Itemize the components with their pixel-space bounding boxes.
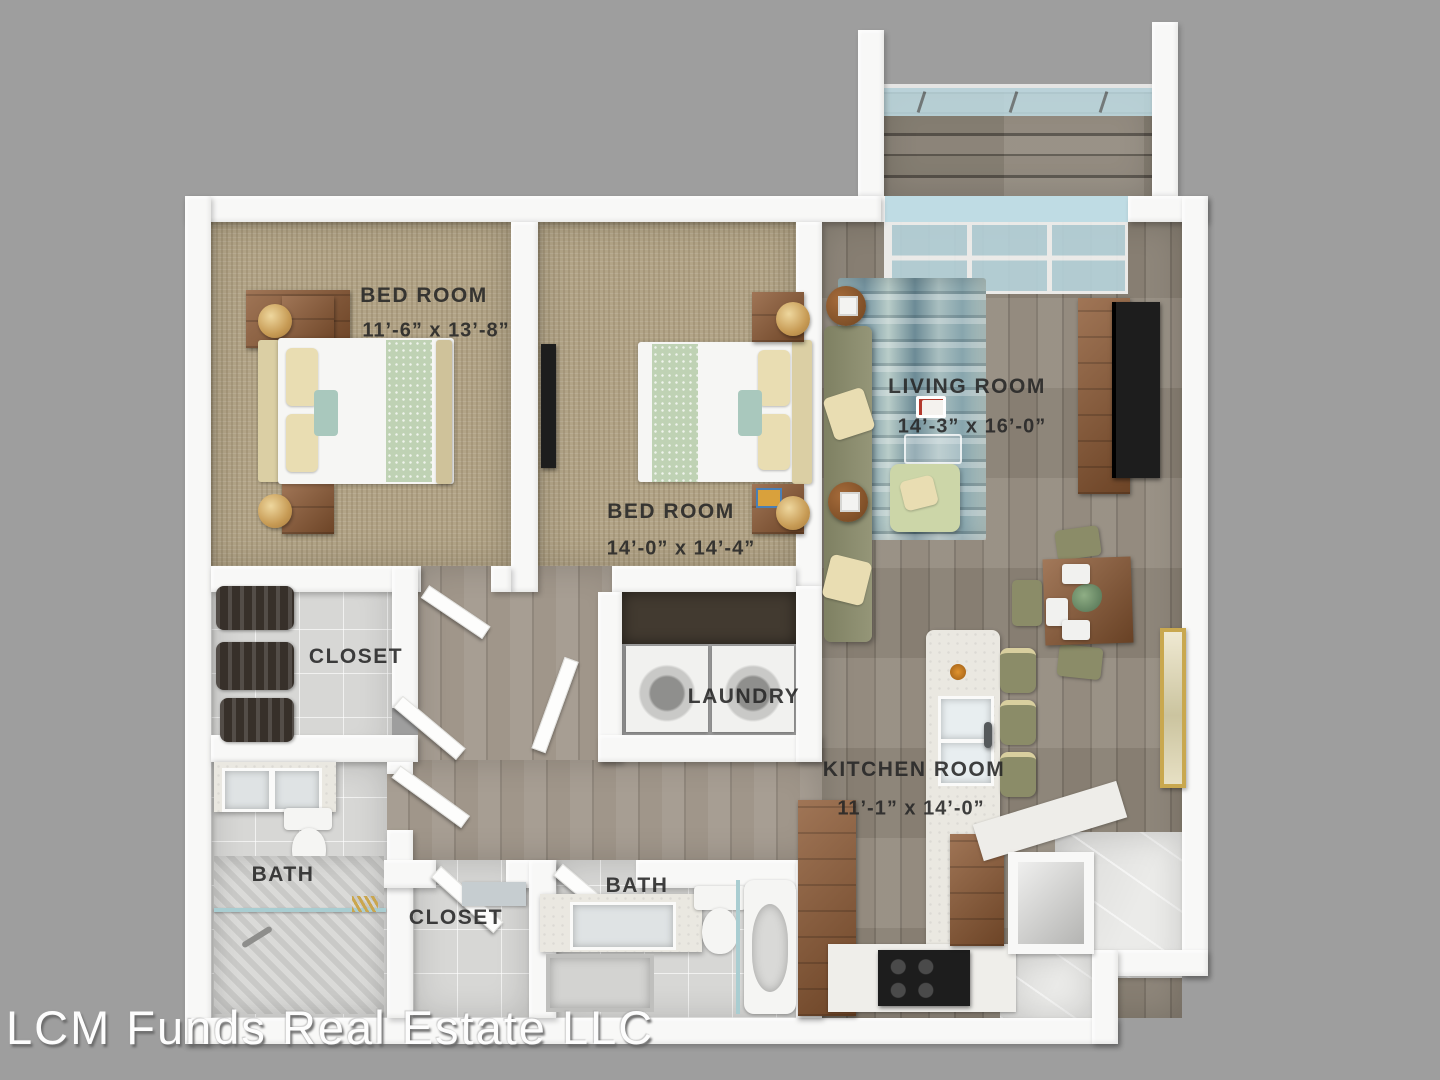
faucet-icon [984, 722, 992, 748]
shoe-rack [216, 642, 294, 690]
table-lamp-icon [838, 296, 858, 316]
lamp-icon [776, 302, 810, 336]
outer-wall-right [1182, 196, 1208, 976]
laundry-counter [622, 592, 796, 644]
pantry-niche [1008, 852, 1094, 954]
kitchen-label: KITCHEN ROOM [823, 758, 1006, 782]
bath-lower-label: BATH [606, 874, 669, 898]
kitchen-dimensions: 11’-1” x 14’-0” [837, 798, 984, 821]
floor-plan: BED ROOM 11’-6” x 13’-8” BED ROOM 14’-0”… [0, 0, 1440, 1080]
bedroom1-footboard [436, 340, 452, 484]
vanity-sink [222, 768, 272, 812]
gold-fixture-decor [352, 896, 378, 912]
outer-wall-bottom-right-v [1092, 950, 1118, 1044]
bedroom2-bed-runner [652, 344, 698, 482]
stove [878, 950, 970, 1006]
pillow [758, 350, 790, 406]
balcony-door-glass [881, 196, 1136, 222]
bathtub-basin [752, 904, 788, 992]
dining-chair [1056, 644, 1103, 680]
wall-bedroom2-bottom [612, 566, 796, 592]
wall-bedroom1-bottom-b [491, 566, 511, 592]
closet-upper-label: CLOSET [309, 645, 403, 669]
bedroom2-tv [541, 344, 556, 468]
dining-chair [1012, 580, 1042, 626]
toilet-tank [284, 808, 332, 830]
railing-post-icon [917, 91, 927, 113]
living-room-dimensions: 14’-3” x 16’-0” [898, 416, 1046, 439]
wall-laundry-bottom [598, 735, 822, 762]
coffee-table [904, 434, 962, 464]
balcony-glass-railing [884, 84, 1152, 116]
bar-stool [1000, 752, 1036, 797]
place-setting [1062, 620, 1090, 640]
table-lamp-icon [840, 492, 860, 512]
accent-pillow [314, 390, 338, 436]
railing-post-icon [1099, 91, 1109, 113]
bedroom1-label: BED ROOM [360, 284, 488, 308]
wall-closet-upper-right [392, 566, 418, 708]
bedroom2-dimensions: 14’-0” x 14’-4” [607, 538, 755, 561]
toilet-bowl [702, 908, 738, 954]
wall-laundry-right [796, 586, 822, 762]
outer-wall-top-left [185, 196, 881, 222]
living-room-label: LIVING ROOM [888, 375, 1046, 399]
bedroom1-headboard [258, 340, 280, 482]
bowl-decor [950, 664, 966, 680]
balcony-right-wall [1152, 22, 1178, 196]
wall-bedroom1-bedroom2 [511, 222, 538, 592]
tub-glass-panel [736, 880, 740, 1014]
shoe-rack [220, 698, 294, 742]
place-setting [1062, 564, 1090, 584]
outer-wall-left [185, 196, 211, 1044]
lamp-icon [258, 304, 292, 338]
lamp-icon [776, 496, 810, 530]
railing-post-icon [1009, 91, 1019, 113]
bedroom1-dimensions: 11’-6” x 13’-8” [362, 320, 509, 343]
lamp-icon [258, 494, 292, 528]
bedroom2-label: BED ROOM [607, 500, 735, 524]
pillow [758, 414, 790, 470]
living-room-tv [1112, 302, 1160, 478]
shoe-rack [216, 586, 294, 630]
bar-stool [1000, 648, 1036, 693]
laundry-label: LAUNDRY [688, 685, 800, 709]
closet-lower-label: CLOSET [409, 906, 503, 930]
closet-shelf [462, 882, 526, 906]
dining-chair [1054, 525, 1102, 561]
watermark-text: LCM Funds Real Estate LLC [6, 1000, 654, 1055]
vanity-sink [272, 768, 322, 812]
bedroom1-bed-runner [386, 340, 432, 482]
wall-art [1160, 628, 1186, 788]
bar-stool [1000, 700, 1036, 745]
accent-pillow [738, 390, 762, 436]
balcony-left-wall [858, 30, 884, 196]
bath-left-label: BATH [252, 863, 315, 887]
bedroom2-headboard [792, 340, 812, 484]
vanity-sink [570, 902, 676, 950]
